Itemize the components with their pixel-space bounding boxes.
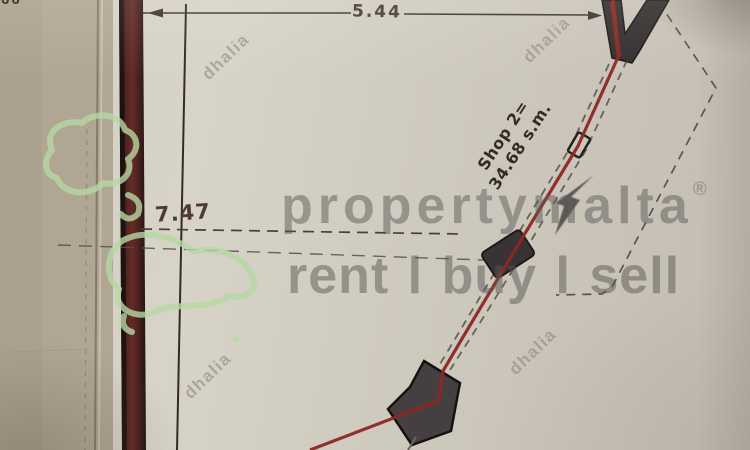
logo-dot bbox=[233, 336, 240, 343]
dimension-side-label: 7.47 bbox=[154, 199, 211, 227]
clipped-edge-marks: 66 bbox=[1, 0, 22, 8]
scanned-floor-plan: 5.44 7.47 Shop 2= 34.68 s.m. 66 property… bbox=[0, 0, 750, 450]
dimension-top-label: 5.44 bbox=[352, 1, 402, 22]
extension-line bbox=[177, 4, 186, 450]
plan-linework bbox=[0, 0, 750, 450]
column-mid bbox=[481, 229, 536, 279]
dimension-arrow-right bbox=[588, 11, 602, 20]
dimension-arrow-left bbox=[148, 9, 163, 18]
dashed-dimension-line bbox=[141, 229, 462, 234]
column-bottom bbox=[388, 361, 460, 445]
boundary-red-line bbox=[310, 0, 619, 450]
dimension-line-top-right bbox=[404, 14, 591, 15]
pen-arrow-mark bbox=[555, 175, 594, 235]
page-edge-shade bbox=[0, 0, 42, 450]
